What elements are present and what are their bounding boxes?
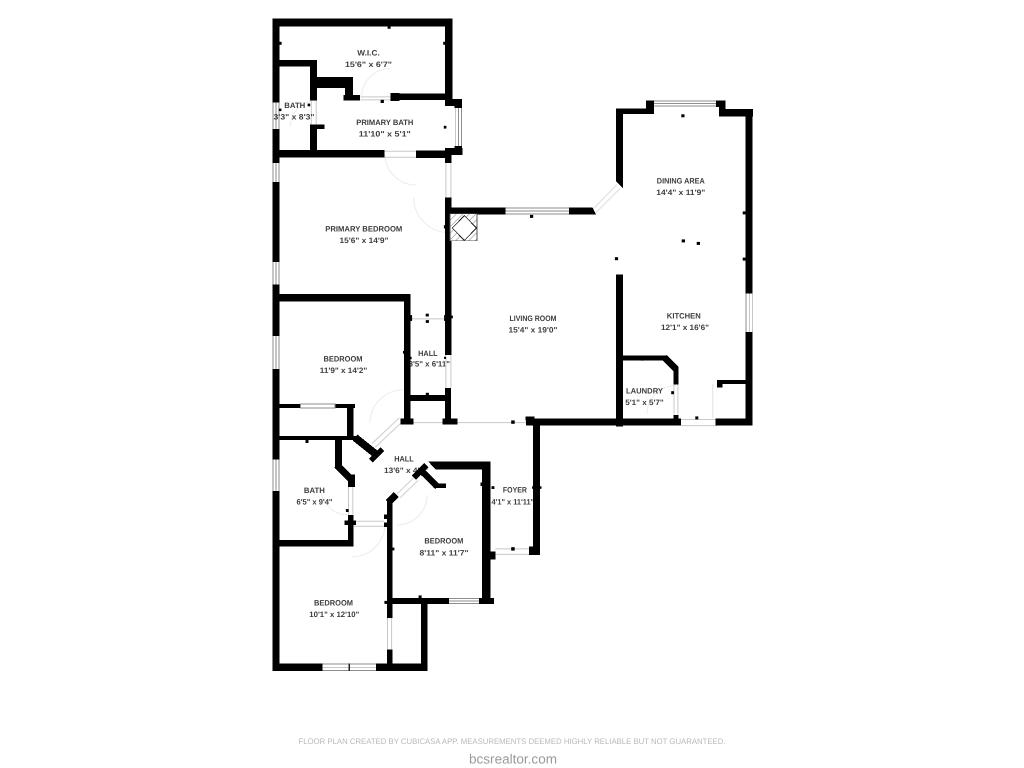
svg-text:10'1" x 12'10": 10'1" x 12'10" — [309, 610, 359, 619]
svg-text:LAUNDRY: LAUNDRY — [626, 387, 664, 396]
svg-text:3'5" x 6'11": 3'5" x 6'11" — [409, 360, 451, 369]
svg-text:bcsrealtor.com: bcsrealtor.com — [469, 752, 557, 767]
svg-text:BEDROOM: BEDROOM — [324, 355, 363, 364]
svg-text:4'1" x 11'11": 4'1" x 11'11" — [491, 498, 534, 507]
svg-text:11'9" x 14'2": 11'9" x 14'2" — [320, 366, 368, 375]
svg-text:6'5" x 9'4": 6'5" x 9'4" — [297, 498, 333, 507]
svg-text:15'6" x 6'7": 15'6" x 6'7" — [345, 60, 392, 69]
svg-text:LIVING ROOM: LIVING ROOM — [510, 314, 557, 323]
svg-text:BEDROOM: BEDROOM — [424, 537, 463, 546]
svg-text:8'11" x 11'7": 8'11" x 11'7" — [420, 549, 469, 558]
svg-text:5'1" x 5'7": 5'1" x 5'7" — [625, 398, 664, 407]
svg-text:PRIMARY BEDROOM: PRIMARY BEDROOM — [325, 225, 402, 234]
svg-text:3'3" x 8'3": 3'3" x 8'3" — [274, 113, 315, 122]
svg-text:15'6" x 14'9": 15'6" x 14'9" — [340, 236, 389, 245]
svg-text:KITCHEN: KITCHEN — [667, 312, 701, 321]
svg-text:BATH: BATH — [284, 101, 305, 110]
svg-text:12'1" x 16'6": 12'1" x 16'6" — [661, 323, 709, 332]
svg-text:BATH: BATH — [304, 486, 325, 495]
svg-text:HALL: HALL — [394, 455, 414, 464]
svg-text:FOYER: FOYER — [503, 486, 527, 495]
svg-text:DINING AREA: DINING AREA — [657, 177, 705, 186]
svg-text:HALL: HALL — [418, 349, 438, 358]
svg-text:BEDROOM: BEDROOM — [314, 599, 353, 608]
svg-text:11'10" x 5'1": 11'10" x 5'1" — [359, 130, 411, 139]
svg-text:W.I.C.: W.I.C. — [357, 49, 380, 58]
svg-text:FLOOR PLAN CREATED BY CUBICASA: FLOOR PLAN CREATED BY CUBICASA APP. MEAS… — [299, 737, 726, 746]
svg-text:15'4" x 19'0": 15'4" x 19'0" — [509, 326, 558, 335]
svg-text:PRIMARY BATH: PRIMARY BATH — [356, 118, 413, 127]
svg-text:14'4" x 11'9": 14'4" x 11'9" — [656, 188, 705, 197]
